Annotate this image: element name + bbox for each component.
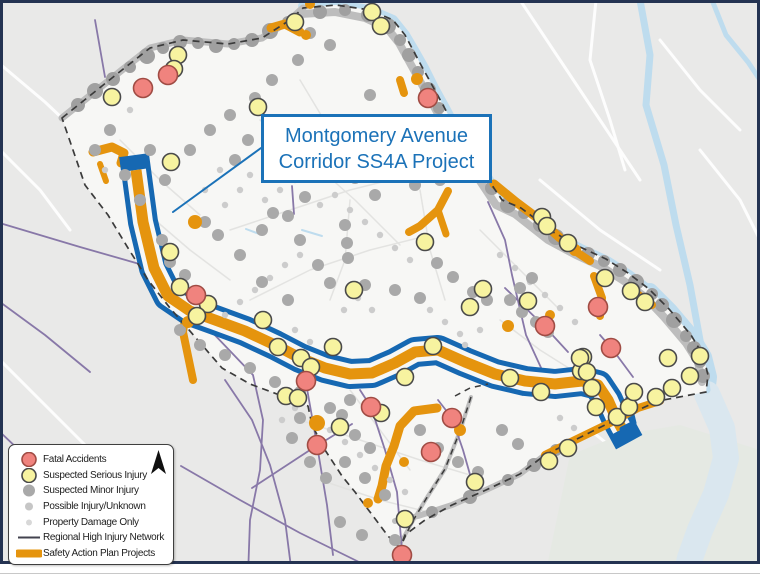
property-damage-dot <box>102 167 108 173</box>
property-damage-dot <box>557 415 563 421</box>
minor-injury-dot <box>344 394 356 406</box>
fatal-accident-dot <box>443 409 462 428</box>
property-damage-dot <box>572 319 578 325</box>
property-damage-dot <box>362 219 368 225</box>
property-damage-dot <box>369 307 375 313</box>
minor-injury-dot <box>334 516 346 528</box>
property-damage-dot <box>571 425 577 431</box>
legend-item: Fatal Accidents <box>15 452 169 468</box>
fatal-accident-dot <box>187 286 206 305</box>
serious-injury-dot <box>332 419 349 436</box>
property-damage-dot <box>387 477 393 483</box>
fatal-accident-dot <box>422 443 441 462</box>
property-damage-dot <box>427 307 433 313</box>
serious-injury-dot <box>692 348 709 365</box>
legend-item: Property Damage Only <box>15 514 169 530</box>
serious-injury-dot <box>520 293 537 310</box>
property-damage-dot <box>332 192 338 198</box>
legend-symbol-circle <box>15 452 43 467</box>
fatal-accident-dot <box>159 66 178 85</box>
minor-injury-dot <box>256 276 268 288</box>
property-damage-dot <box>442 319 448 325</box>
minor-injury-dot <box>282 294 294 306</box>
minor-injury-dot <box>431 257 443 269</box>
minor-injury-dot <box>224 109 236 121</box>
legend-symbol-circle <box>15 483 43 498</box>
minor-injury-dot <box>414 424 426 436</box>
property-damage-dot <box>357 452 363 458</box>
property-damage-dot <box>407 257 413 263</box>
minor-injury-dot <box>356 529 368 541</box>
property-damage-dot <box>557 305 563 311</box>
serious-injury-dot <box>270 339 287 356</box>
property-damage-dot <box>542 292 548 298</box>
property-damage-dot <box>457 331 463 337</box>
legend-symbol-circle <box>15 515 43 530</box>
minor-injury-dot <box>324 402 336 414</box>
fatal-accident-dot <box>134 79 153 98</box>
callout-line1: Montgomery Avenue <box>285 123 468 149</box>
serious-injury-dot <box>290 390 307 407</box>
minor-injury-dot <box>339 456 351 468</box>
legend-item-label: Regional High Injury Network <box>43 532 164 543</box>
minor-injury-dot <box>144 144 156 156</box>
serious-injury-dot <box>660 350 677 367</box>
serious-injury-dot <box>250 99 267 116</box>
property-damage-dot <box>279 417 285 423</box>
property-damage-dot <box>282 262 288 268</box>
legend-item: Possible Injury/Unknown <box>15 499 169 515</box>
minor-injury-dot <box>447 271 459 283</box>
serious-injury-dot <box>637 294 654 311</box>
legend-symbol-line <box>15 530 43 545</box>
serious-injury-dot <box>648 389 665 406</box>
property-damage-dot <box>267 275 273 281</box>
minor-injury-dot <box>204 124 216 136</box>
minor-injury-dot <box>364 89 376 101</box>
serious-injury-dot <box>664 380 681 397</box>
property-damage-dot <box>342 439 348 445</box>
minor-injury-dot <box>304 456 316 468</box>
legend-symbol-thick-line <box>15 546 43 561</box>
serious-injury-dot <box>579 364 596 381</box>
minor-injury-dot <box>219 349 231 361</box>
legend-item: Suspected Minor Injury <box>15 483 169 499</box>
serious-injury-dot <box>475 281 492 298</box>
legend-rows: Fatal AccidentsSuspected Serious InjuryS… <box>15 452 169 561</box>
map-figure: Montgomery Avenue Corridor SS4A Project … <box>0 0 760 576</box>
property-damage-dot <box>222 312 228 318</box>
property-damage-dot <box>247 172 253 178</box>
callout-line2: Corridor SS4A Project <box>279 149 475 175</box>
property-damage-dot <box>497 252 503 258</box>
legend-item-label: Safety Action Plan Projects <box>43 548 155 559</box>
minor-injury-dot <box>269 376 281 388</box>
north-arrow-icon <box>151 450 166 476</box>
serious-injury-dot <box>287 14 304 31</box>
serious-injury-dot <box>417 234 434 251</box>
minor-injury-dot <box>294 234 306 246</box>
legend-item-label: Possible Injury/Unknown <box>43 501 146 512</box>
minor-injury-dot <box>324 277 336 289</box>
legend-item-label: Fatal Accidents <box>43 454 106 465</box>
property-damage-dot <box>341 307 347 313</box>
serious-injury-dot <box>373 18 390 35</box>
property-damage-dot <box>237 299 243 305</box>
serious-injury-dot <box>597 270 614 287</box>
corridor-callout: Montgomery Avenue Corridor SS4A Project <box>261 114 492 183</box>
minor-injury-dot <box>212 229 224 241</box>
serious-injury-dot <box>189 308 206 325</box>
property-damage-dot <box>297 252 303 258</box>
serious-injury-dot <box>255 312 272 329</box>
fatal-accident-dot <box>297 372 316 391</box>
minor-injury-dot <box>266 74 278 86</box>
property-damage-dot <box>377 232 383 238</box>
map-legend: Fatal AccidentsSuspected Serious InjuryS… <box>8 444 174 565</box>
property-damage-dot <box>347 207 353 213</box>
minor-injury-dot <box>341 237 353 249</box>
minor-injury-dot <box>194 339 206 351</box>
serious-injury-dot <box>462 299 479 316</box>
property-damage-dot <box>217 167 223 173</box>
legend-item-label: Property Damage Only <box>43 517 139 528</box>
serious-injury-dot <box>104 89 121 106</box>
minor-injury-dot <box>294 412 306 424</box>
minor-injury-dot <box>452 456 464 468</box>
minor-injury-dot <box>312 259 324 271</box>
property-damage-dot <box>402 489 408 495</box>
serious-injury-dot <box>584 380 601 397</box>
fatal-accident-dot <box>536 317 555 336</box>
fatal-accident-dot <box>602 339 621 358</box>
minor-injury-dot <box>119 169 131 181</box>
serious-injury-dot <box>623 283 640 300</box>
minor-injury-dot <box>244 362 256 374</box>
serious-injury-dot <box>533 384 550 401</box>
serious-injury-dot <box>162 244 179 261</box>
property-damage-dot <box>317 202 323 208</box>
serious-injury-dot <box>397 511 414 528</box>
minor-injury-dot <box>256 224 268 236</box>
property-damage-dot <box>392 245 398 251</box>
property-damage-dot <box>222 202 228 208</box>
serious-injury-dot <box>539 218 556 235</box>
property-damage-dot <box>252 287 258 293</box>
legend-item: Regional High Injury Network <box>15 530 169 546</box>
minor-injury-dot <box>369 189 381 201</box>
fatal-accident-dot <box>589 298 608 317</box>
minor-injury-dot <box>267 207 279 219</box>
minor-injury-dot <box>104 124 116 136</box>
minor-injury-dot <box>339 219 351 231</box>
serious-injury-dot <box>560 235 577 252</box>
minor-injury-dot <box>89 144 101 156</box>
minor-injury-dot <box>292 54 304 66</box>
property-damage-dot <box>277 187 283 193</box>
serious-injury-dot <box>325 339 342 356</box>
legend-symbol-circle <box>15 499 43 514</box>
minor-injury-dot <box>320 472 332 484</box>
serious-injury-dot <box>425 338 442 355</box>
minor-injury-dot <box>504 294 516 306</box>
serious-injury-dot <box>346 282 363 299</box>
serious-injury-dot <box>397 369 414 386</box>
minor-injury-dot <box>526 272 538 284</box>
serious-injury-dot <box>541 453 558 470</box>
property-damage-dot <box>237 187 243 193</box>
property-damage-dot <box>127 107 133 113</box>
property-damage-dot <box>372 465 378 471</box>
minor-injury-dot <box>379 489 391 501</box>
serious-injury-dot <box>588 399 605 416</box>
minor-injury-dot <box>242 134 254 146</box>
property-damage-dot <box>292 327 298 333</box>
legend-item-label: Suspected Serious Injury <box>43 470 147 481</box>
minor-injury-dot <box>514 282 526 294</box>
legend-item: Suspected Serious Injury <box>15 468 169 484</box>
property-damage-dot <box>307 339 313 345</box>
minor-injury-dot <box>234 249 246 261</box>
serious-injury-dot <box>626 384 643 401</box>
minor-injury-dot <box>414 292 426 304</box>
serious-injury-dot <box>467 474 484 491</box>
serious-injury-dot <box>163 154 180 171</box>
fatal-accident-dot <box>419 89 438 108</box>
minor-injury-dot <box>299 191 311 203</box>
minor-injury-dot <box>512 438 524 450</box>
property-damage-dot <box>512 265 518 271</box>
minor-injury-dot <box>286 432 298 444</box>
minor-injury-dot <box>282 210 294 222</box>
serious-injury-dot <box>502 370 519 387</box>
property-damage-dot <box>477 327 483 333</box>
minor-injury-dot <box>342 252 354 264</box>
serious-injury-dot <box>682 368 699 385</box>
legend-item: Safety Action Plan Projects <box>15 546 169 562</box>
property-damage-dot <box>262 197 268 203</box>
minor-injury-dot <box>389 284 401 296</box>
minor-injury-dot <box>349 429 361 441</box>
minor-injury-dot <box>324 39 336 51</box>
fatal-accident-dot <box>308 436 327 455</box>
property-damage-dot <box>462 342 468 348</box>
minor-injury-dot <box>184 144 196 156</box>
fatal-accident-dot <box>362 398 381 417</box>
minor-injury-dot <box>364 442 376 454</box>
legend-symbol-circle <box>15 468 43 483</box>
minor-injury-dot <box>134 194 146 206</box>
minor-injury-dot <box>389 534 401 546</box>
minor-injury-dot <box>359 472 371 484</box>
minor-injury-dot <box>159 174 171 186</box>
serious-injury-dot <box>560 440 577 457</box>
minor-injury-dot <box>496 424 508 436</box>
legend-item-label: Suspected Minor Injury <box>43 485 139 496</box>
